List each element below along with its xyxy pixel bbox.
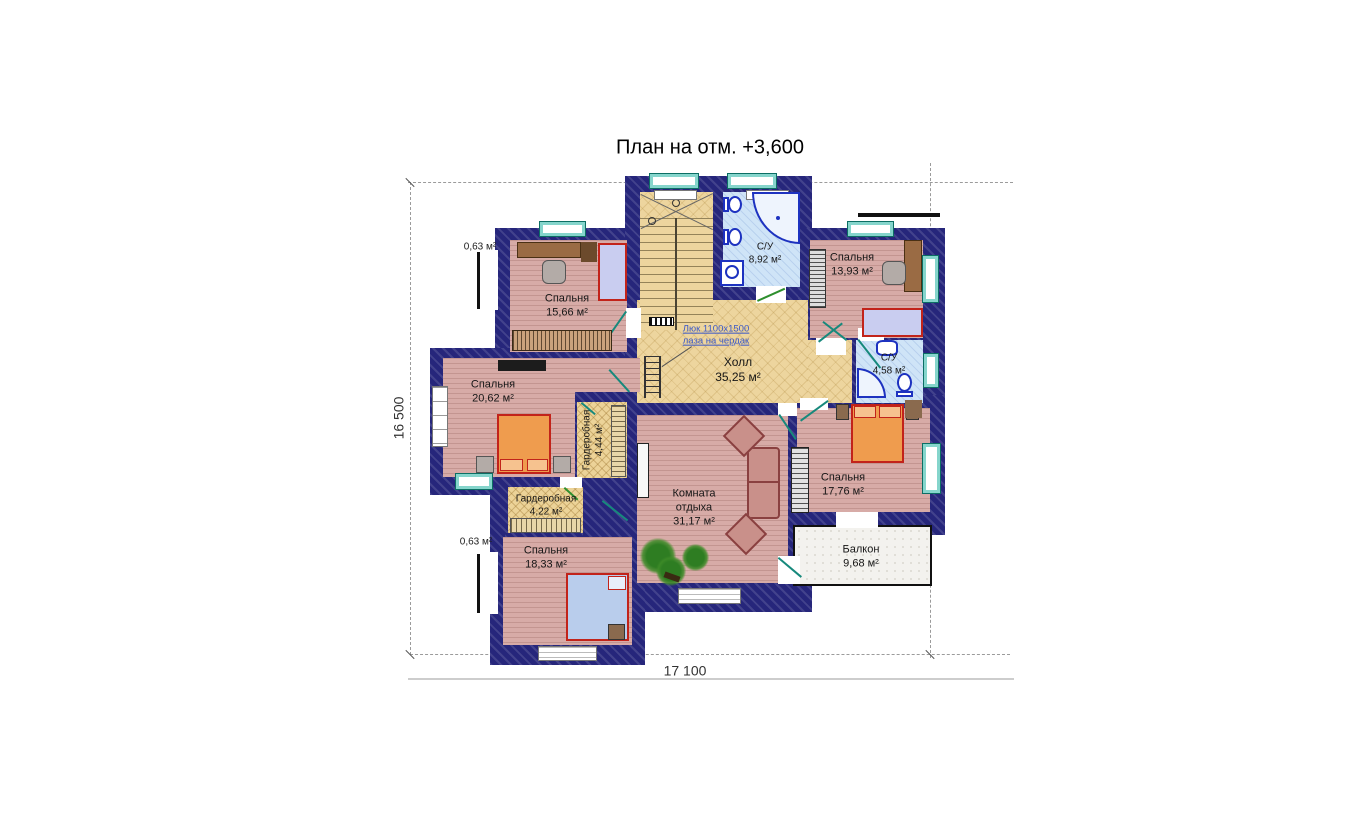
chair [882,261,906,285]
room-name: Спальня [524,544,568,558]
room-label-balcony: Балкон 9,68 м² [843,543,880,571]
window [650,174,698,188]
stairs-post-marker [648,217,656,225]
desk [904,240,922,292]
room-area: 31,17 м² [672,515,715,529]
hanger-rail [611,405,626,477]
attic-hatch-note-line2: лаза на чердак [683,336,749,348]
floor-plan-canvas: 16 500 17 100 План на отм. +3,600 [0,0,1350,840]
washing-machine-drum [725,265,739,279]
room-label-wardrobe-middle: Гардеробная 4,44 м² [582,410,607,471]
door-opening [836,512,878,528]
room-area: 17,76 м² [821,485,865,499]
door-opening [626,308,641,338]
plant [682,544,709,571]
niche-area-note-top: 0,63 м² [464,242,496,253]
hanger-rail [510,518,581,533]
window [728,174,776,188]
room-label-lounge: Комната отдыха 31,17 м² [672,487,715,528]
room-label-bedroom-bottom-left: Спальня 18,33 м² [524,544,568,572]
pillow [854,406,876,418]
wardrobe-hatch [809,249,826,308]
attic-ladder [644,356,661,398]
room-area: 15,66 м² [545,306,589,320]
room-label-bedroom-left: Спальня 20,62 м² [471,378,515,406]
room-area: 8,92 м² [749,254,781,267]
attic-hatch-note-line1: Люк 1100х1500 [683,324,749,336]
room-area: 4,22 м² [516,506,577,519]
dresser [905,400,922,418]
nightstand [476,456,494,473]
room-area: 35,25 м² [715,370,761,385]
room-name: С/У [749,242,781,255]
room-name: Спальня [545,292,589,306]
window [848,222,893,236]
pillow [879,406,901,418]
room-name: Балкон [843,543,880,557]
room-label-bathroom-top: С/У 8,92 м² [749,242,781,267]
room-name: Холл [715,355,761,370]
room-name: отдыха [672,501,715,515]
room-area: 13,93 м² [830,265,874,279]
room-name: Комната [672,487,715,501]
shelving-rack [791,447,809,513]
floor-corridor [575,358,640,392]
page-title: План на отм. +3,600 [616,136,804,161]
room-area: 4,44 м² [594,410,607,471]
door-opening [778,403,797,416]
niche-area-note-bottom: 0,63 м² [460,537,492,548]
wall-niche [479,552,498,614]
window-white [432,386,448,447]
dimension-label-vertical: 16 500 [390,397,408,440]
room-label-wardrobe-bottom: Гардеробная 4,22 м² [516,494,577,519]
room-name: Гардеробная [516,494,577,507]
bed-single [862,308,923,337]
room-label-bedroom-top-left: Спальня 15,66 м² [545,292,589,320]
room-area: 20,62 м² [471,392,515,406]
room-label-bedroom-right: Спальня 17,76 м² [821,471,865,499]
bathtub-drain-dot [776,216,780,220]
niche-lintel-line [477,252,480,309]
window [456,474,492,489]
stairs-divider [675,218,677,330]
niche-lintel-line [477,554,480,613]
sofa-cushion-line [749,481,778,483]
room-name: Спальня [471,378,515,392]
room-label-bathroom-right: С/У 4,58 м² [873,353,905,378]
pillow [608,576,626,590]
bidet [728,228,742,246]
stairs-post-marker [672,199,680,207]
room-label-bedroom-top-right: Спальня 13,93 м² [830,251,874,279]
nightstand [553,456,571,473]
room-name: Спальня [830,251,874,265]
door-opening [560,477,582,488]
window [924,354,938,387]
chair [542,260,566,284]
room-name: Гардеробная [582,410,595,471]
nightstand [836,404,849,420]
sofa [747,447,780,519]
window-white [678,588,741,604]
bed-single [598,243,627,301]
room-name: С/У [873,353,905,366]
toilet [728,196,742,213]
room-name: Спальня [821,471,865,485]
attic-hatch-note: Люк 1100х1500 лаза на чердак [683,324,749,349]
window [540,222,585,236]
room-label-hall: Холл 35,25 м² [715,355,761,385]
window [923,256,938,302]
dimension-label-horizontal: 17 100 [664,662,707,680]
toilet [896,391,913,397]
nightstand [608,624,625,640]
pillow [500,459,523,471]
room-area: 9,68 м² [843,557,880,571]
dimension-line-left [410,182,411,655]
dresser [581,242,597,262]
lintel-line [858,213,940,217]
wardrobe-hatch [512,330,612,351]
doormat-strip [649,317,674,326]
radiator [654,190,697,200]
window-white [538,646,597,661]
window [923,444,940,493]
wall-niche [479,250,498,310]
desk [517,242,581,258]
pillow [527,459,548,471]
room-area: 18,33 м² [524,558,568,572]
drawing-border-line [408,678,1014,680]
tv-unit [637,443,649,498]
tv-stand [498,360,546,371]
room-area: 4,58 м² [873,365,905,378]
